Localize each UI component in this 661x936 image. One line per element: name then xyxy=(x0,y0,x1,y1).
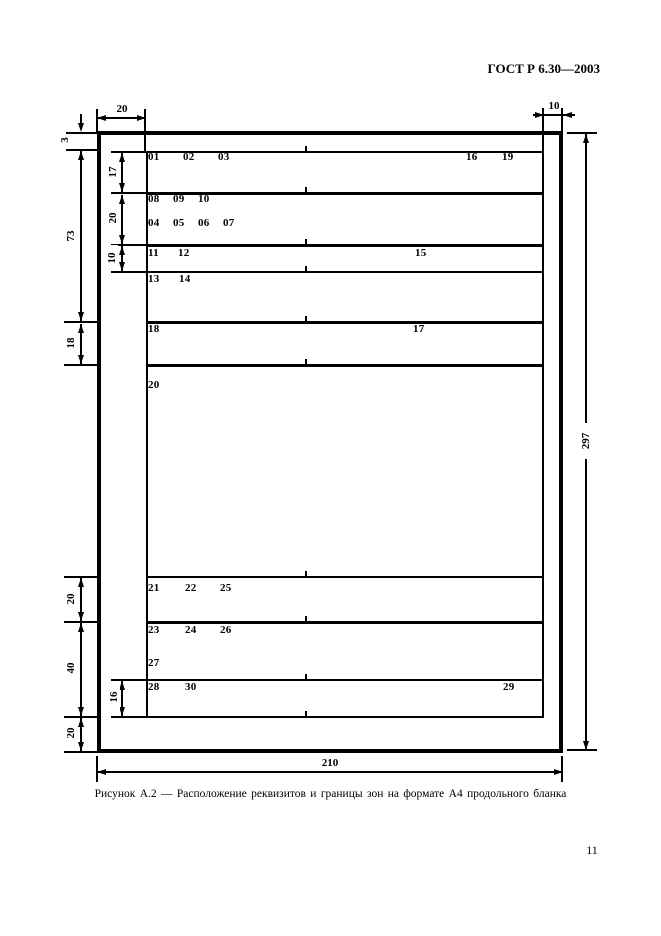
field-label-05: 05 xyxy=(173,218,184,229)
document-header: ГОСТ Р 6.30—2003 xyxy=(420,61,600,77)
dim-label-18: 18 xyxy=(65,330,77,356)
field-label-30: 30 xyxy=(185,682,196,693)
arrowhead xyxy=(78,123,84,132)
extension-line xyxy=(111,192,146,194)
dim-label-10-inner: 10 xyxy=(106,245,118,271)
field-label-24: 24 xyxy=(185,625,196,636)
zone-boundary-tick xyxy=(305,239,307,246)
extension-line xyxy=(567,132,597,134)
zone-boundary-tick xyxy=(305,616,307,623)
zone-divider-line xyxy=(147,679,543,681)
dim-label-40: 40 xyxy=(65,655,77,681)
extension-line xyxy=(64,321,97,323)
field-label-27: 27 xyxy=(148,658,159,669)
zone-boundary-tick xyxy=(305,674,307,681)
dim-label-page-width: 210 xyxy=(308,757,352,769)
extension-line xyxy=(64,751,97,753)
field-label-29: 29 xyxy=(503,682,514,693)
dim-label-73: 73 xyxy=(65,223,77,249)
zone-boundary-tick xyxy=(305,571,307,578)
zone-boundary-tick xyxy=(305,711,307,718)
zone-divider-line xyxy=(147,364,543,367)
arrowhead xyxy=(119,235,125,244)
field-label-25: 25 xyxy=(220,583,231,594)
arrowhead xyxy=(97,115,106,121)
field-label-06: 06 xyxy=(198,218,209,229)
field-label-16: 16 xyxy=(466,152,477,163)
arrowhead xyxy=(78,312,84,321)
zone-boundary-tick xyxy=(305,316,307,323)
field-label-19: 19 xyxy=(502,152,513,163)
zone-divider-line xyxy=(147,271,543,273)
dim-label-top-left-margin: 20 xyxy=(104,103,140,115)
field-label-11: 11 xyxy=(148,248,159,259)
arrowhead xyxy=(583,741,589,750)
field-label-03: 03 xyxy=(218,152,229,163)
field-label-04: 04 xyxy=(148,218,159,229)
field-label-13: 13 xyxy=(148,274,159,285)
extension-line xyxy=(111,716,146,718)
field-label-01: 01 xyxy=(148,152,159,163)
zone-divider-line xyxy=(147,321,543,324)
zone-divider-line xyxy=(147,244,543,247)
page-number: 11 xyxy=(580,843,604,858)
extension-line xyxy=(96,109,98,133)
zone-divider-line xyxy=(147,621,543,624)
dim-label-page-height: 297 xyxy=(580,423,592,459)
extension-line xyxy=(64,364,97,366)
field-label-10: 10 xyxy=(198,194,209,205)
extension-line xyxy=(111,271,146,273)
dim-label-3: 3 xyxy=(59,130,71,150)
arrowhead xyxy=(554,769,563,775)
extension-line xyxy=(567,749,597,751)
dim-label-top-right-margin: 10 xyxy=(536,100,572,112)
field-label-28: 28 xyxy=(148,682,159,693)
dimension-line xyxy=(97,771,563,773)
field-label-26: 26 xyxy=(220,625,231,636)
arrowhead xyxy=(78,355,84,364)
dim-label-17: 17 xyxy=(107,159,119,185)
arrowhead xyxy=(119,262,125,271)
field-label-17: 17 xyxy=(413,324,424,335)
dim-label-16: 16 xyxy=(108,684,120,710)
zone-boundary-tick xyxy=(305,266,307,273)
field-label-14: 14 xyxy=(179,274,190,285)
figure-caption: Рисунок А.2 — Расположение реквизитов и … xyxy=(50,788,611,800)
field-label-02: 02 xyxy=(183,152,194,163)
zone-boundary-tick xyxy=(305,359,307,366)
arrowhead xyxy=(137,115,146,121)
extension-line xyxy=(111,151,146,153)
arrowhead xyxy=(119,183,125,192)
dimension-line xyxy=(80,623,82,716)
arrowhead xyxy=(78,707,84,716)
zone-divider-line xyxy=(147,576,543,578)
field-label-15: 15 xyxy=(415,248,426,259)
field-label-23: 23 xyxy=(148,625,159,636)
extension-line xyxy=(111,679,146,681)
field-label-09: 09 xyxy=(173,194,184,205)
field-label-07: 07 xyxy=(223,218,234,229)
dim-label-20-inner: 20 xyxy=(107,205,119,231)
dim-label-20-bottom: 20 xyxy=(65,720,77,746)
field-label-21: 21 xyxy=(148,583,159,594)
zone-boundary-tick xyxy=(305,146,307,153)
field-label-18: 18 xyxy=(148,324,159,335)
dim-label-20-upper: 20 xyxy=(65,586,77,612)
arrowhead xyxy=(535,112,544,118)
inner-margin-frame xyxy=(146,151,544,718)
field-label-08: 08 xyxy=(148,194,159,205)
dimension-line xyxy=(80,151,82,321)
arrowhead xyxy=(78,612,84,621)
field-label-22: 22 xyxy=(185,583,196,594)
arrowhead xyxy=(78,742,84,751)
field-label-12: 12 xyxy=(178,248,189,259)
arrowhead xyxy=(563,112,572,118)
arrowhead xyxy=(583,134,589,143)
field-label-20: 20 xyxy=(148,380,159,391)
zone-boundary-tick xyxy=(305,187,307,194)
document-page: ГОСТ Р 6.30—2003 01 02 03 16 19 08 09 10… xyxy=(0,0,661,936)
arrowhead xyxy=(97,769,106,775)
